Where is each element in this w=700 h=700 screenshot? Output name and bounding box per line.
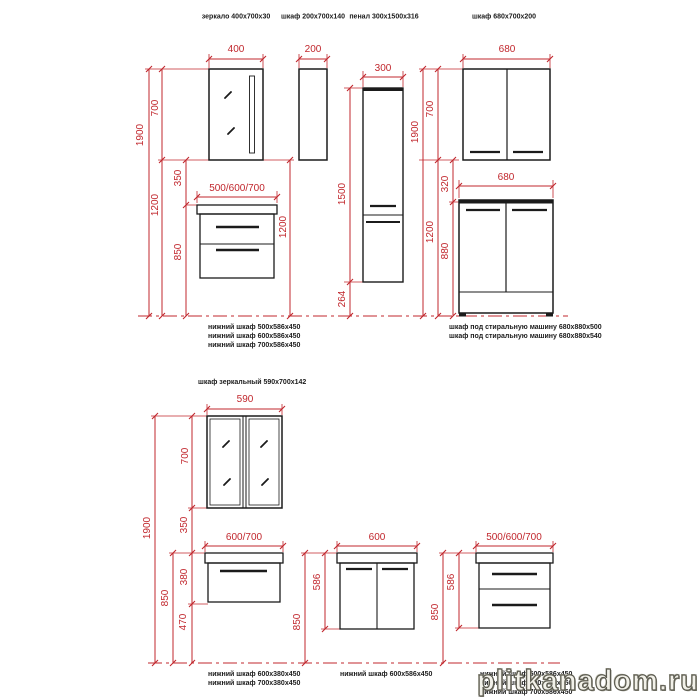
watermark-text: plitkanadom.ru [477, 665, 699, 698]
dim-label: 700 [181, 448, 191, 465]
caption-line: шкаф под стиральную машину 680х880х540 [449, 332, 602, 341]
dim-label: 1200 [279, 216, 289, 238]
caption-line: нижний шкаф 600х586х450 [340, 670, 432, 679]
dim-label: 680 [499, 45, 516, 55]
dim-label: 590 [237, 395, 254, 405]
mirror-400 [209, 69, 263, 160]
dim-label: 850 [293, 614, 303, 631]
dim-label: 700 [151, 100, 161, 117]
dim-label: 586 [313, 574, 323, 591]
vanity-two-doors [337, 553, 417, 629]
product-label-mirror-cabinet: шкаф зеркальный 590х700х142 [198, 378, 306, 387]
dim-label: 1900 [136, 124, 146, 146]
dim-label: 850 [431, 604, 441, 621]
dim-label: 320 [441, 176, 451, 193]
dim-label: 350 [174, 170, 184, 187]
caption-group-bottom-mid: нижний шкаф 600х586х450 [340, 670, 432, 679]
tall-cabinet-penal [363, 88, 403, 282]
wall-cabinet-200 [299, 69, 327, 160]
product-label-wall-cab-680: шкаф 680х700х200 [472, 13, 536, 22]
caption-group-washing: шкаф под стиральную машину 680х880х500 ш… [449, 323, 602, 341]
dim-label: 200 [305, 45, 322, 55]
dim-label: 1200 [426, 221, 436, 243]
dim-label: 300 [375, 64, 392, 74]
dim-label: 380 [180, 569, 190, 586]
dim-label: 500/600/700 [486, 533, 542, 543]
dim-label: 470 [179, 614, 189, 631]
product-label-mirror: зеркало 400х700х30 [202, 13, 270, 22]
vanity-two-drawers [197, 205, 277, 278]
dim-label: 600/700 [226, 533, 262, 543]
vanity-one-drawer [205, 553, 283, 602]
caption-line: шкаф под стиральную машину 680х880х500 [449, 323, 602, 332]
technical-drawing [0, 0, 700, 700]
furniture-dimension-diagram: зеркало 400х700х30 шкаф 200х700х140 пена… [0, 0, 700, 700]
mirror-cabinet-590 [207, 416, 282, 508]
bottom-row-furniture [205, 416, 553, 629]
caption-line: нижний шкаф 700х380х450 [208, 679, 300, 688]
dim-label: 1900 [143, 517, 153, 539]
dim-label: 264 [338, 291, 348, 308]
dim-label: 500/600/700 [209, 184, 265, 194]
product-label-penal: пенал 300х1500х316 [349, 13, 418, 22]
dim-label: 400 [228, 45, 245, 55]
dim-label: 1200 [151, 194, 161, 216]
floor-line [138, 316, 568, 663]
caption-group-bottom-left: нижний шкаф 600х380х450 нижний шкаф 700х… [208, 670, 300, 688]
dim-label: 680 [498, 173, 515, 183]
dim-label: 850 [174, 244, 184, 261]
dim-label: 880 [441, 243, 451, 260]
dim-label: 850 [161, 590, 171, 607]
vanity-two-drawers-b [476, 553, 553, 628]
dim-label: 1900 [411, 121, 421, 143]
dim-label: 700 [426, 101, 436, 118]
caption-line: нижний шкаф 600х380х450 [208, 670, 300, 679]
washing-machine-cabinet [459, 200, 553, 317]
caption-line: нижний шкаф 500х586х450 [208, 323, 300, 332]
wall-cabinet-680 [463, 69, 550, 160]
product-label-wall-cabinet: шкаф 200х700х140 [281, 13, 345, 22]
dim-label: 1500 [338, 183, 348, 205]
caption-line: нижний шкаф 600х586х450 [208, 332, 300, 341]
dim-label: 600 [369, 533, 386, 543]
dim-label: 350 [180, 517, 190, 534]
caption-line: нижний шкаф 700х586х450 [208, 341, 300, 350]
mirror-sparkles [225, 92, 234, 134]
dim-label: 586 [447, 574, 457, 591]
caption-group-vanities: нижний шкаф 500х586х450 нижний шкаф 600х… [208, 323, 300, 350]
